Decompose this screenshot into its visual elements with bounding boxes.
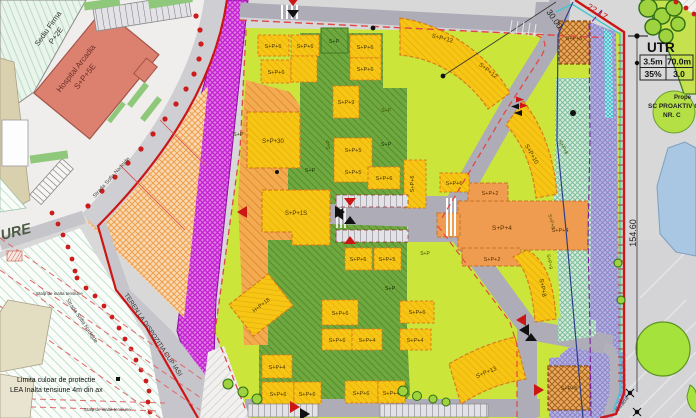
svg-text:S+P: S+P	[381, 142, 392, 148]
svg-text:S+P: S+P	[381, 108, 391, 114]
svg-text:S+P+2: S+P+2	[484, 257, 501, 263]
svg-text:S+P+4: S+P+4	[383, 391, 400, 397]
svg-text:SC PROAKTIV C: SC PROAKTIV C	[648, 103, 696, 110]
svg-text:S+P+6: S+P+6	[357, 45, 374, 51]
svg-text:70.0m: 70.0m	[667, 57, 692, 67]
svg-text:S+P: S+P	[329, 39, 340, 45]
svg-text:S+P+6: S+P+6	[265, 44, 282, 50]
svg-text:S+P+6: S+P+6	[376, 176, 393, 182]
svg-text:S+P+6: S+P+6	[270, 392, 287, 398]
svg-text:LEA Inalta tensiune 4m din ax: LEA Inalta tensiune 4m din ax	[10, 387, 103, 394]
svg-text:S+P+6: S+P+6	[268, 70, 285, 76]
svg-text:3.5m: 3.5m	[643, 57, 663, 67]
svg-text:S+P+6: S+P+6	[446, 181, 463, 187]
svg-text:S+P+1S: S+P+1S	[285, 211, 307, 217]
svg-text:S+P+5: S+P+5	[345, 170, 362, 176]
svg-text:S+P+6: S+P+6	[332, 311, 349, 317]
svg-text:S+P: S+P	[326, 140, 332, 150]
svg-text:154.60: 154.60	[628, 219, 638, 247]
svg-text:S+P+5: S+P+5	[561, 386, 578, 392]
svg-text:S+P+4: S+P+4	[269, 365, 286, 371]
svg-text:Stalp de inalta tensiune: Stalp de inalta tensiune	[36, 291, 83, 296]
svg-text:S+P+6: S+P+6	[350, 257, 367, 263]
svg-text:S+P: S+P	[420, 251, 430, 257]
svg-text:Stalp de inalta tensiune: Stalp de inalta tensiune	[84, 407, 131, 412]
svg-text:S+P+2: S+P+2	[482, 191, 499, 197]
svg-text:S+P+6: S+P+6	[299, 392, 316, 398]
svg-text:S+P: S+P	[233, 132, 244, 138]
svg-text:S+P+4: S+P+4	[492, 225, 512, 232]
svg-text:S+P+5: S+P+5	[379, 257, 396, 263]
svg-text:S+P+4: S+P+4	[359, 338, 376, 344]
svg-text:S+P+6: S+P+6	[353, 391, 370, 397]
svg-text:35%: 35%	[644, 69, 661, 79]
svg-text:S+P+5: S+P+5	[566, 36, 583, 42]
svg-text:Limita culoar de protectie: Limita culoar de protectie	[17, 377, 95, 384]
svg-text:3.0: 3.0	[673, 69, 685, 79]
svg-text:S+P+5: S+P+5	[345, 148, 362, 154]
svg-text:S+P+30: S+P+30	[262, 139, 284, 145]
svg-text:S+P: S+P	[385, 286, 396, 292]
svg-text:S+P+6: S+P+6	[409, 310, 426, 316]
svg-text:S+P+6: S+P+6	[329, 338, 346, 344]
svg-text:Prope: Prope	[674, 95, 692, 101]
svg-text:S+P+9: S+P+9	[338, 100, 355, 106]
svg-text:S+P+4: S+P+4	[407, 338, 424, 344]
svg-text:NR. C: NR. C	[663, 112, 681, 119]
svg-text:S+P+6: S+P+6	[357, 67, 374, 73]
svg-text:UTR: UTR	[647, 40, 675, 55]
svg-text:S+P: S+P	[305, 168, 316, 174]
svg-text:S+P+6: S+P+6	[297, 44, 314, 50]
svg-text:S+P+6: S+P+6	[410, 176, 416, 193]
